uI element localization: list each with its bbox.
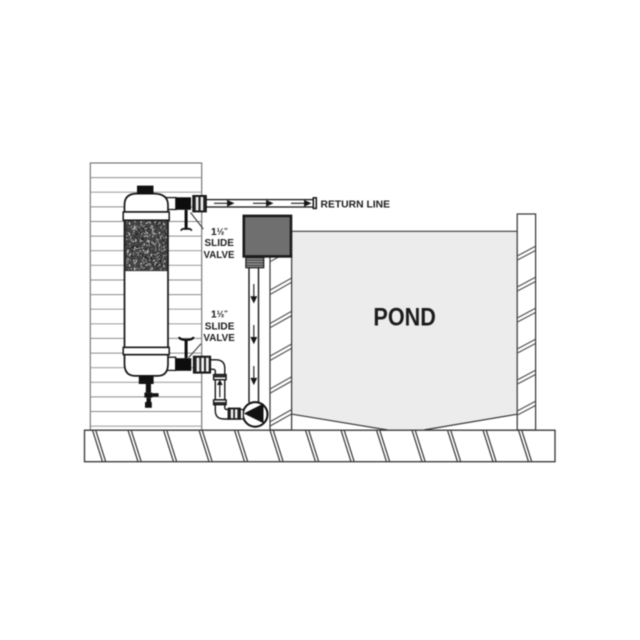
svg-text:VALVE: VALVE bbox=[203, 332, 234, 344]
svg-text:SLIDE: SLIDE bbox=[205, 321, 235, 333]
svg-text:SLIDE: SLIDE bbox=[205, 237, 234, 249]
svg-text:POND: POND bbox=[373, 305, 436, 332]
svg-text:RETURN LINE: RETURN LINE bbox=[321, 200, 391, 211]
svg-text:VALVE: VALVE bbox=[204, 249, 235, 261]
